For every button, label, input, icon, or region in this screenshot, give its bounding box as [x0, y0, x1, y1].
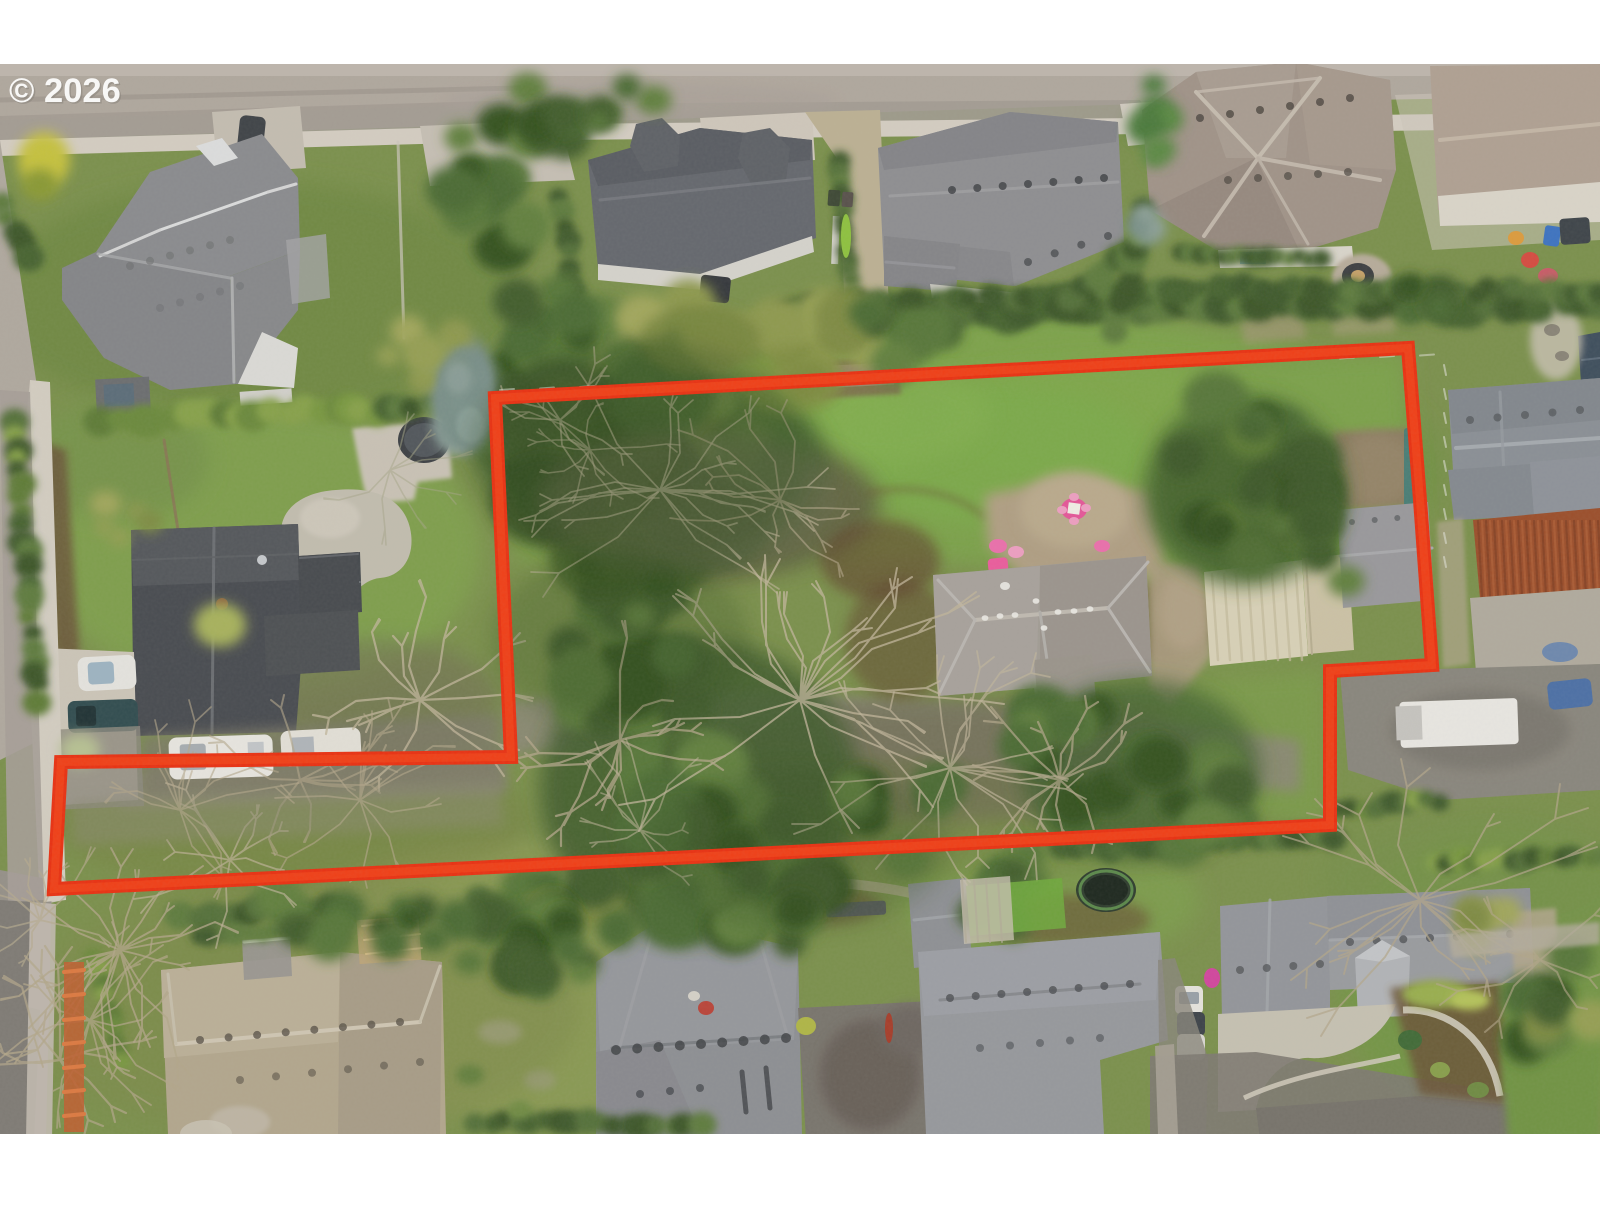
svg-text:© 2026: © 2026 [9, 72, 121, 110]
